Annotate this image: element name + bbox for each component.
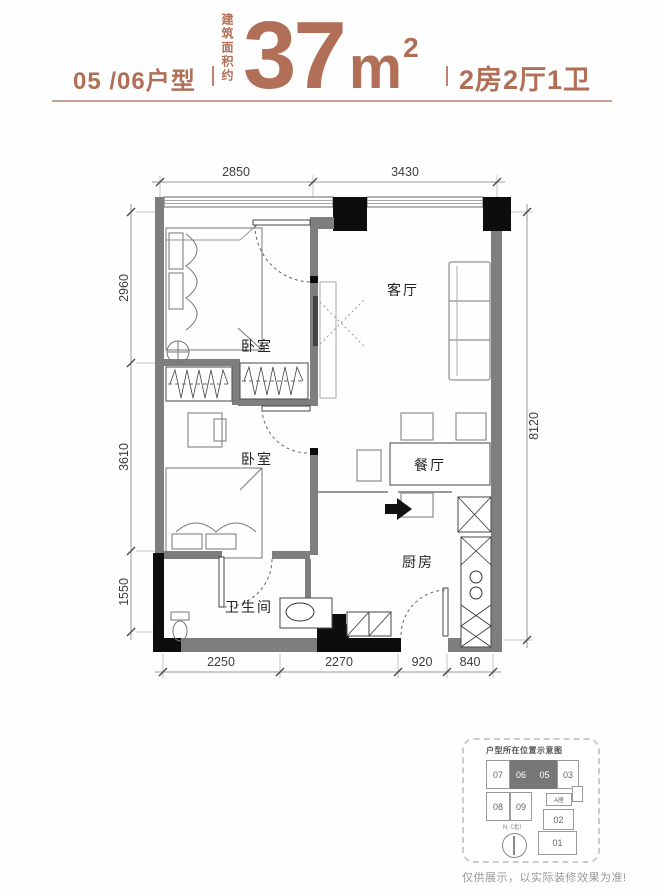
inset-unit-06-highlighted: 06 [510,760,532,789]
jamb-bedroom2 [310,448,318,455]
wall-wardrobe-sep [232,359,240,405]
tv [313,296,366,348]
header-divider-right [446,66,448,86]
wall-stub-vanity [332,614,346,638]
dim-top-1: 2850 [222,165,250,179]
toilet [171,612,189,641]
compass-needle [513,836,515,855]
dim-left-2: 3610 [117,443,131,471]
wall-bottom-black-2 [317,638,401,652]
wall-v1-a [310,217,318,283]
room-label-living: 客厅 [387,282,419,298]
wall-v1-c [310,455,318,555]
wardrobe-left [166,367,232,401]
column-top-right [483,197,511,231]
desk [188,413,226,447]
area-caption-vertical: 建筑面积约 [220,13,234,83]
inset-unit-02: 02 [543,809,574,830]
floorplan-page: 05 /06户型 建筑面积约 37 m 2 2房2厅1卫 [0,0,661,891]
window-band [164,197,483,207]
sofa [449,262,490,380]
door-arc-bedroom1 [255,225,310,282]
disclaimer-text: 仅供展示，以实际装修效果为准! [462,869,627,885]
wall-wardrobe-bottom [238,399,312,406]
inset-elevator-stub [572,786,583,802]
dim-bottom-1: 2250 [207,655,235,669]
inset-title: 户型所在位置示意图 [486,745,563,756]
area-number: 37 [243,8,344,104]
compass-circle [502,833,527,858]
area-unit: m [349,38,402,98]
compass-icon: N（北） [498,825,530,858]
dim-right-1: 8120 [527,412,541,440]
room-label-dining: 餐厅 [414,457,446,473]
wall-bath-top-right [272,551,310,559]
shoe-cabinet [347,612,391,636]
bed-2 [166,468,262,558]
inset-unit-07: 07 [486,760,510,789]
door-leaf-bedroom2 [262,406,310,411]
bed-1 [166,228,262,350]
inset-unit-03: 03 [557,760,579,789]
tv-cabinet [320,282,336,398]
door-arc-entrance [401,590,445,636]
wardrobe-right [240,363,308,399]
unit-number-label: 05 /06户型 [73,61,196,96]
compass-label: N（北） [498,825,530,832]
room-label-kitchen: 厨房 [402,554,434,570]
wall-bath-right [305,559,311,600]
dim-bottom-3: 920 [412,655,433,669]
walls [153,197,511,652]
inset-unit-08: 08 [486,792,510,821]
kitchen-counter [458,497,491,647]
header-divider-left [212,66,214,86]
column-top-middle [333,197,367,231]
dim-left-3: 1550 [117,578,131,606]
dim-top-2: 3430 [391,165,419,179]
door-arc-bedroom2 [262,409,310,453]
inset-unit-01: 01 [538,831,577,855]
dim-bottom-4: 840 [460,655,481,669]
jamb-bedroom1 [310,276,318,283]
area-unit-superscript: 2 [403,32,419,64]
header-rule [52,100,612,102]
bulkhead-line [166,224,308,240]
room-label-bedroom1: 卧室 [241,338,273,354]
wall-stub-top [318,217,334,229]
wall-bottom-gray-1 [181,638,317,652]
inset-unit-09: 09 [510,792,532,821]
wall-right [491,203,502,652]
door-leaf-entrance [443,588,448,636]
wall-left-black [153,553,164,652]
floor-plan: 2850 3430 2960 3610 1550 8120 2250 2270 … [0,140,661,760]
wall-left-gray [155,197,164,553]
dim-left-1: 2960 [117,274,131,302]
room-label-bedroom2: 卧室 [241,451,273,467]
door-leaf-bedroom1 [253,220,310,225]
inset-unit-05-highlighted: 05 [532,760,557,789]
vanity [280,598,332,628]
room-label-bathroom: 卫生间 [225,599,273,615]
dim-bottom-2: 2270 [325,655,353,669]
inset-tower-label: A座 [546,793,572,806]
door-leaf-bathroom [219,557,224,607]
area-value-group: 37 m 2 [243,8,419,104]
unit-location-inset: 户型所在位置示意图 07 06 05 03 08 09 A座 02 01 N（北… [462,738,600,863]
furniture [166,224,491,647]
room-spec-label: 2房2厅1卫 [459,58,591,97]
